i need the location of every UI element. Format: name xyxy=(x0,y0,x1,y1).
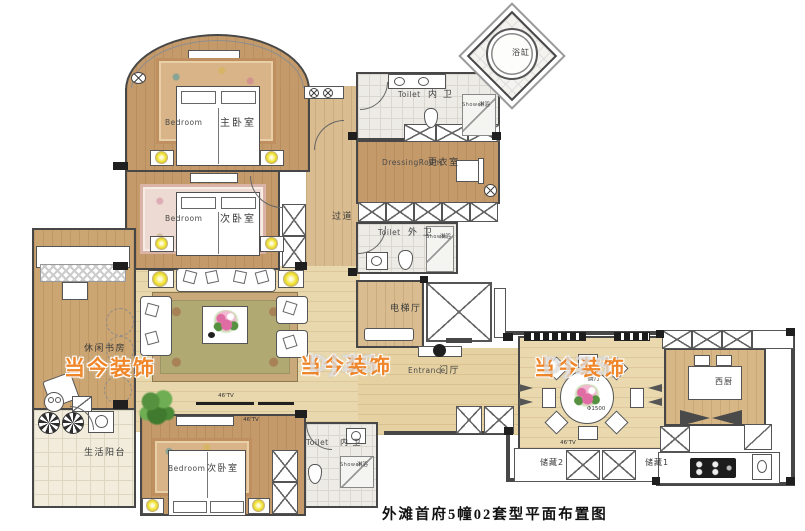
pillow xyxy=(221,197,256,209)
dressing-chair-back xyxy=(478,158,484,184)
dressing-wardrobe xyxy=(414,202,442,222)
flower-emblem-icon xyxy=(433,344,446,357)
sink-basin xyxy=(757,460,767,473)
curtain-mark xyxy=(519,398,533,406)
bar-stool xyxy=(716,355,732,366)
lamp-icon xyxy=(152,271,168,287)
planter-basin xyxy=(38,412,60,434)
ceiling-fan-icon xyxy=(131,72,146,84)
door-swing xyxy=(712,410,742,426)
teacup xyxy=(48,397,54,403)
bar-stool xyxy=(694,355,710,366)
column xyxy=(295,262,307,270)
curtain-mark xyxy=(648,384,662,392)
washer-drum xyxy=(95,415,108,428)
elevator-shaft xyxy=(426,282,492,342)
column xyxy=(113,162,128,170)
column xyxy=(348,132,357,140)
window-sill xyxy=(614,332,650,341)
lamp-icon xyxy=(283,271,299,287)
fridge xyxy=(744,424,772,450)
lamp-icon xyxy=(265,151,278,164)
bed-split-line xyxy=(218,212,219,254)
third-bedroom-wardrobe xyxy=(272,482,298,514)
tv-wall-line xyxy=(196,402,254,405)
dining-chair xyxy=(542,388,556,408)
kitchen-top-cabinet xyxy=(662,330,692,349)
sofa-pillow xyxy=(233,270,247,284)
sink-basin xyxy=(418,77,429,86)
desk-chair xyxy=(62,282,88,300)
table-flowers xyxy=(572,384,602,408)
kitchen-cabinet xyxy=(660,426,690,452)
ceiling-fan-icon xyxy=(484,184,497,197)
bench xyxy=(364,328,414,341)
column xyxy=(652,477,660,485)
wall-segment xyxy=(506,430,510,482)
flower-bouquet xyxy=(212,310,240,334)
dresser xyxy=(190,173,238,183)
sofa-pillow xyxy=(205,270,219,284)
column xyxy=(504,427,513,435)
lamp-icon xyxy=(146,499,159,512)
elevator-door-panel xyxy=(494,288,506,338)
third-bedroom-wardrobe xyxy=(272,450,298,482)
tv-size-label: 46'TV xyxy=(548,440,588,446)
storage-cabinet xyxy=(566,450,600,480)
pillow xyxy=(181,197,216,209)
lamp-icon xyxy=(155,237,168,250)
pillow xyxy=(181,91,216,104)
elevator-sill xyxy=(446,338,472,343)
column xyxy=(420,276,428,283)
lamp-icon xyxy=(155,151,168,164)
floor-plan: 46'TV 46'TV xyxy=(0,0,805,531)
pillow xyxy=(210,501,244,513)
entrance-shaft xyxy=(456,406,482,434)
column xyxy=(786,477,795,485)
column-circle xyxy=(106,308,134,336)
curtain-mark xyxy=(648,398,662,406)
shower-area xyxy=(462,94,496,136)
tv-size-label: 46'TV xyxy=(236,417,266,423)
storage-cabinet xyxy=(602,450,636,480)
tv-wall-line xyxy=(258,402,294,405)
column xyxy=(295,410,307,418)
kitchen-top-cabinet xyxy=(692,330,722,349)
door-swing xyxy=(680,410,710,426)
pillow xyxy=(173,501,207,513)
wall-segment xyxy=(791,331,795,484)
dressing-wardrobe xyxy=(358,202,386,222)
gas-stove xyxy=(690,458,736,478)
sink-basin xyxy=(394,77,405,86)
potted-plant xyxy=(136,386,178,430)
column xyxy=(503,333,513,341)
shower-area xyxy=(340,456,374,488)
window-sill xyxy=(524,332,586,341)
kitchen-top-cabinet xyxy=(722,330,752,349)
dressing-wardrobe xyxy=(386,202,414,222)
column xyxy=(113,400,128,409)
curtain-mark xyxy=(519,384,533,392)
round-tea-table xyxy=(44,392,64,412)
sink-basin xyxy=(371,256,382,266)
plan-title: 外滩首府5幢02套型平面布置图 xyxy=(382,503,608,524)
column xyxy=(656,330,664,338)
column xyxy=(113,262,128,270)
bed-split-line xyxy=(218,108,219,164)
dresser xyxy=(176,416,234,426)
extractor-fan-icon xyxy=(323,88,333,98)
column xyxy=(786,328,795,336)
column xyxy=(348,268,357,276)
dining-chair xyxy=(578,426,598,440)
dressing-wardrobe xyxy=(470,202,498,222)
pillow xyxy=(221,91,256,104)
column xyxy=(492,132,501,140)
teapot xyxy=(208,332,215,338)
lamp-icon xyxy=(252,499,265,512)
dressing-wardrobe xyxy=(442,202,470,222)
passage-floor xyxy=(306,86,360,296)
extractor-fan-icon xyxy=(309,88,319,98)
teacup xyxy=(55,397,61,403)
tv-size-label: 46'TV xyxy=(206,393,246,399)
lamp-icon xyxy=(265,237,278,250)
dining-chair xyxy=(630,388,644,408)
wardrobe-cabinet xyxy=(282,204,306,236)
